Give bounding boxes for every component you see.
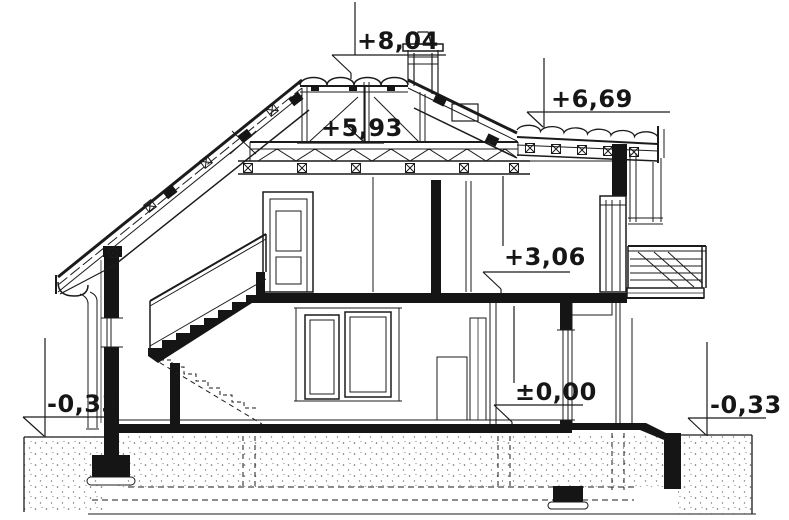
balcony — [627, 246, 706, 298]
elevation-label-ridge: +8,04 — [357, 29, 439, 53]
ridge-cap — [300, 78, 408, 92]
ground-floor — [294, 297, 632, 433]
truss-webs — [258, 149, 516, 161]
left-wall — [101, 246, 123, 455]
first-floor — [263, 144, 627, 315]
architectural-section-drawing: +8,04 +6,69 +5,93 +3,06 ±0,00 -0,33 -0,3… — [0, 0, 789, 520]
stair-flight — [148, 295, 263, 363]
left-roof — [56, 80, 309, 429]
window-tall-right — [345, 312, 391, 397]
retaining-wall — [664, 433, 681, 489]
balcony-support — [616, 303, 632, 423]
ground-fill — [24, 434, 752, 514]
right-exterior-wall — [557, 297, 575, 433]
elevation-label-attic-collar: +5,93 — [321, 116, 403, 140]
marker-first-floor — [483, 176, 570, 294]
low-roof — [517, 125, 664, 224]
marker-ground-right — [688, 342, 766, 436]
stair-railing — [150, 234, 266, 354]
elevation-label-secondary-roof: +6,69 — [551, 87, 633, 111]
staircase — [148, 234, 266, 424]
first-floor-slab — [263, 293, 627, 303]
interior-wall — [431, 180, 441, 293]
section-linework — [0, 0, 789, 520]
balcony-door — [600, 196, 626, 292]
marker-ground-left — [23, 338, 104, 437]
eaves-side-structure — [628, 153, 663, 224]
elevation-label-ground-left: -0,33 — [47, 392, 119, 416]
elevation-label-first-floor: +3,06 — [504, 245, 586, 269]
elevation-marker-lines — [23, 2, 766, 437]
knee-wall — [612, 144, 627, 196]
right-roof — [408, 80, 517, 158]
elevation-label-ground-floor: ±0,00 — [515, 380, 597, 404]
elevation-label-ground-right: -0,33 — [710, 393, 782, 417]
cabinet-low — [437, 357, 467, 420]
left-wall-window — [101, 318, 123, 347]
balcony-railing — [628, 246, 706, 288]
